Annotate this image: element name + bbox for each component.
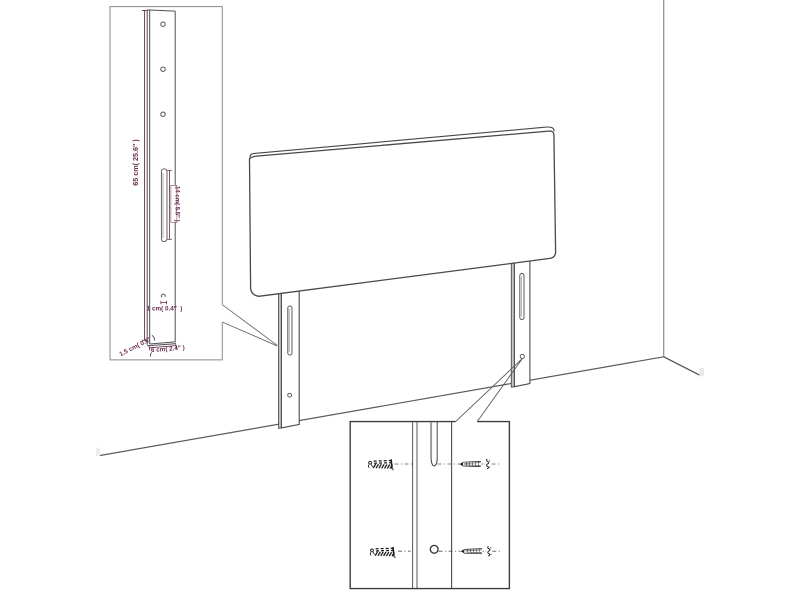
svg-text:14 cm( 5.5″ ): 14 cm( 5.5″ )	[174, 186, 180, 222]
svg-text:65 cm( 25.6″ ): 65 cm( 25.6″ )	[131, 139, 140, 186]
svg-text:1 cm( 0.4″ ): 1 cm( 0.4″ )	[147, 306, 183, 313]
